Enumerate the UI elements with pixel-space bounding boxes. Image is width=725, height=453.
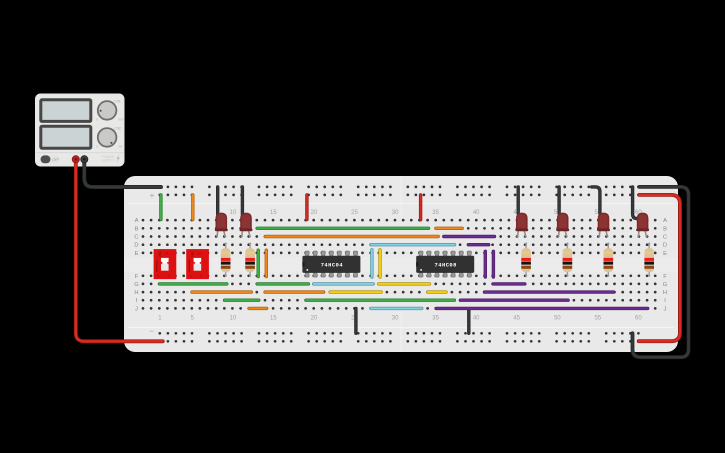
svg-text:35: 35 — [432, 316, 439, 322]
svg-text:B: B — [663, 226, 667, 232]
svg-text:74HC08: 74HC08 — [434, 262, 456, 268]
svg-text:35: 35 — [432, 210, 439, 216]
svg-text:F: F — [135, 274, 139, 280]
svg-text:ON: ON — [157, 251, 161, 257]
svg-text:Ch1: Ch1 — [114, 99, 121, 103]
svg-text:A: A — [663, 218, 667, 224]
svg-text:G: G — [134, 282, 139, 288]
svg-text:25: 25 — [351, 210, 358, 216]
svg-text:15: 15 — [270, 316, 277, 322]
svg-text:+: + — [150, 190, 155, 200]
svg-text:30: 30 — [392, 316, 399, 322]
svg-text:15: 15 — [270, 210, 277, 216]
svg-text:40: 40 — [473, 316, 480, 322]
svg-text:20: 20 — [311, 316, 318, 322]
svg-text:60: 60 — [635, 316, 642, 322]
svg-text:B: B — [135, 226, 139, 232]
svg-text:E: E — [135, 251, 139, 257]
svg-text:G: G — [663, 282, 668, 288]
svg-text:F: F — [663, 274, 667, 280]
svg-text:40: 40 — [473, 210, 480, 216]
svg-text:J: J — [664, 306, 667, 312]
svg-text:74HC04: 74HC04 — [321, 262, 344, 268]
svg-text:30V: 30V — [118, 117, 123, 121]
svg-text:1: 1 — [165, 252, 169, 254]
svg-text:20: 20 — [311, 210, 318, 216]
svg-text:ON: ON — [190, 251, 194, 257]
svg-text:30: 30 — [392, 210, 399, 216]
svg-text:45: 45 — [513, 316, 520, 322]
svg-text:D: D — [134, 243, 138, 249]
svg-text:10: 10 — [230, 316, 237, 322]
svg-text:A: A — [135, 218, 139, 224]
svg-text:C: C — [663, 235, 667, 241]
svg-text:C: C — [134, 235, 138, 241]
svg-text:Ch2: Ch2 — [114, 126, 121, 130]
svg-text:H: H — [134, 290, 138, 296]
svg-text:E: E — [663, 251, 667, 257]
svg-text:10: 10 — [230, 210, 237, 216]
svg-text:55: 55 — [594, 316, 601, 322]
svg-text:J: J — [135, 306, 138, 312]
svg-text:5A: 5A — [118, 144, 122, 148]
svg-text:1: 1 — [197, 252, 201, 254]
svg-text:H: H — [663, 290, 667, 296]
svg-text:D: D — [663, 243, 667, 249]
svg-text:SUPPLY: SUPPLY — [102, 159, 116, 163]
svg-text:50: 50 — [554, 316, 561, 322]
svg-text:OFF: OFF — [52, 158, 58, 162]
svg-text:−: − — [149, 327, 154, 336]
